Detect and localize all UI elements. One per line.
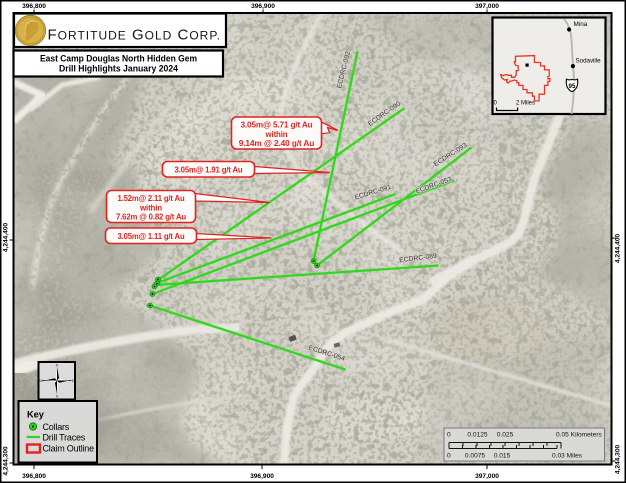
svg-text:Key: Key <box>27 410 45 420</box>
svg-text:E: E <box>72 379 75 383</box>
svg-text:S: S <box>56 395 59 399</box>
svg-text:4,244,400: 4,244,400 <box>3 223 10 253</box>
svg-text:East Camp Douglas North Hidden: East Camp Douglas North Hidden Gem <box>40 54 197 64</box>
svg-text:Collars: Collars <box>43 422 70 432</box>
svg-text:W: W <box>39 379 43 383</box>
svg-text:396,800: 396,800 <box>22 3 46 10</box>
svg-text:396,900: 396,900 <box>251 3 275 10</box>
svg-text:Claim Outline: Claim Outline <box>43 444 95 454</box>
svg-text:0.025: 0.025 <box>497 432 514 439</box>
svg-text:9.14m @ 2.40 g/t Au: 9.14m @ 2.40 g/t Au <box>239 139 315 148</box>
svg-text:Drill Highlights January 2024: Drill Highlights January 2024 <box>59 64 178 74</box>
svg-text:397,000: 397,000 <box>475 473 499 480</box>
svg-text:3.05m@ 1.11 g/t Au: 3.05m@ 1.11 g/t Au <box>118 232 185 241</box>
svg-text:N: N <box>56 364 59 368</box>
svg-text:Mina: Mina <box>574 21 588 28</box>
svg-text:0.015: 0.015 <box>494 453 511 460</box>
svg-text:3.05m@ 1.91 g/t Au: 3.05m@ 1.91 g/t Au <box>175 166 243 175</box>
svg-text:0: 0 <box>447 432 451 439</box>
svg-text:7.62m @ 0.82 g/t Au: 7.62m @ 0.82 g/t Au <box>116 213 186 222</box>
svg-text:Sodaville: Sodaville <box>576 58 602 65</box>
svg-text:4,244,400: 4,244,400 <box>615 234 622 264</box>
svg-text:4,244,300: 4,244,300 <box>3 446 10 476</box>
svg-text:0.0125: 0.0125 <box>467 432 488 439</box>
svg-text:within: within <box>139 203 162 212</box>
svg-text:within: within <box>265 130 288 139</box>
svg-text:0: 0 <box>447 453 451 460</box>
svg-text:0.05 Kilometers: 0.05 Kilometers <box>556 432 603 439</box>
svg-text:1.52m@ 2.11 g/t Au: 1.52m@ 2.11 g/t Au <box>118 194 185 203</box>
svg-text:Drill Traces: Drill Traces <box>43 433 86 443</box>
svg-text:396,900: 396,900 <box>250 473 274 480</box>
svg-text:397,000: 397,000 <box>475 3 499 10</box>
svg-text:FORTITUDE GOLD CORP.: FORTITUDE GOLD CORP. <box>48 27 222 44</box>
svg-text:3.05m@ 5.71 g/t Au: 3.05m@ 5.71 g/t Au <box>241 120 313 129</box>
svg-text:95: 95 <box>569 83 576 90</box>
svg-text:396,800: 396,800 <box>22 473 46 480</box>
svg-text:0.03 Miles: 0.03 Miles <box>552 453 583 460</box>
svg-text:4,244,300: 4,244,300 <box>615 445 622 475</box>
svg-text:0.0075: 0.0075 <box>465 453 486 460</box>
svg-text:2 Miles: 2 Miles <box>516 101 535 107</box>
